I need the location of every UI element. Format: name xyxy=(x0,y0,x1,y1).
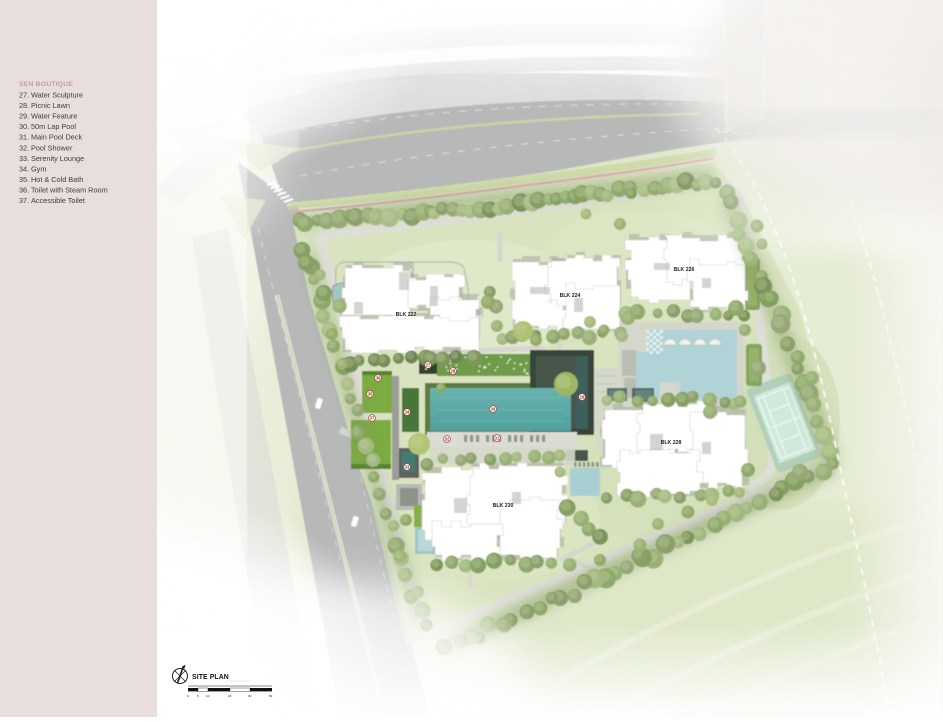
svg-text:29: 29 xyxy=(580,395,585,400)
svg-text:Serenity Lounge: Serenity Lounge xyxy=(31,154,84,163)
svg-text:BLK 230: BLK 230 xyxy=(493,503,514,509)
svg-text:29.: 29. xyxy=(19,112,29,121)
svg-text:BLK 224: BLK 224 xyxy=(560,293,581,299)
svg-text:28: 28 xyxy=(451,369,456,374)
svg-text:30.: 30. xyxy=(19,122,29,131)
svg-text:30: 30 xyxy=(248,694,252,698)
svg-text:BLK 228: BLK 228 xyxy=(661,440,682,446)
svg-text:BLK 222: BLK 222 xyxy=(396,312,417,318)
svg-text:36.: 36. xyxy=(19,186,29,195)
svg-text:Water Feature: Water Feature xyxy=(31,112,77,121)
svg-text:50: 50 xyxy=(269,694,273,698)
svg-text:Main Pool Deck: Main Pool Deck xyxy=(31,133,82,142)
svg-text:27: 27 xyxy=(426,363,431,368)
svg-text:31.: 31. xyxy=(19,133,29,142)
svg-text:34.: 34. xyxy=(19,164,29,173)
svg-text:35: 35 xyxy=(368,392,373,397)
svg-text:33.: 33. xyxy=(19,154,29,163)
svg-text:Hot & Cold Bath: Hot & Cold Bath xyxy=(31,175,83,184)
svg-text:Toilet with Steam Room: Toilet with Steam Room xyxy=(31,186,108,195)
svg-text:10: 10 xyxy=(206,694,210,698)
svg-text:32.: 32. xyxy=(19,143,29,152)
svg-text:27.: 27. xyxy=(19,91,29,100)
svg-text:35.: 35. xyxy=(19,175,29,184)
svg-text:Water Sculpture: Water Sculpture xyxy=(31,91,83,100)
svg-text:BLK 226: BLK 226 xyxy=(674,267,695,273)
svg-text:28.: 28. xyxy=(19,101,29,110)
svg-text:Picnic Lawn: Picnic Lawn xyxy=(31,101,70,110)
svg-text:34: 34 xyxy=(405,410,410,415)
svg-text:37: 37 xyxy=(370,416,375,421)
svg-text:31: 31 xyxy=(495,436,500,441)
svg-text:50m Lap Pool: 50m Lap Pool xyxy=(31,122,76,131)
svg-text:20: 20 xyxy=(228,694,232,698)
svg-text:SITE PLAN: SITE PLAN xyxy=(192,674,229,681)
svg-text:32: 32 xyxy=(445,437,450,442)
svg-text:37.: 37. xyxy=(19,196,29,205)
svg-text:33: 33 xyxy=(405,465,410,470)
svg-text:30: 30 xyxy=(491,407,496,412)
svg-text:Accessible Toilet: Accessible Toilet xyxy=(31,196,85,205)
svg-text:Pool Shower: Pool Shower xyxy=(31,143,73,152)
svg-text:36: 36 xyxy=(376,376,381,381)
svg-text:Gym: Gym xyxy=(31,164,46,173)
svg-text:SEN BOUTIQUE: SEN BOUTIQUE xyxy=(19,81,73,88)
